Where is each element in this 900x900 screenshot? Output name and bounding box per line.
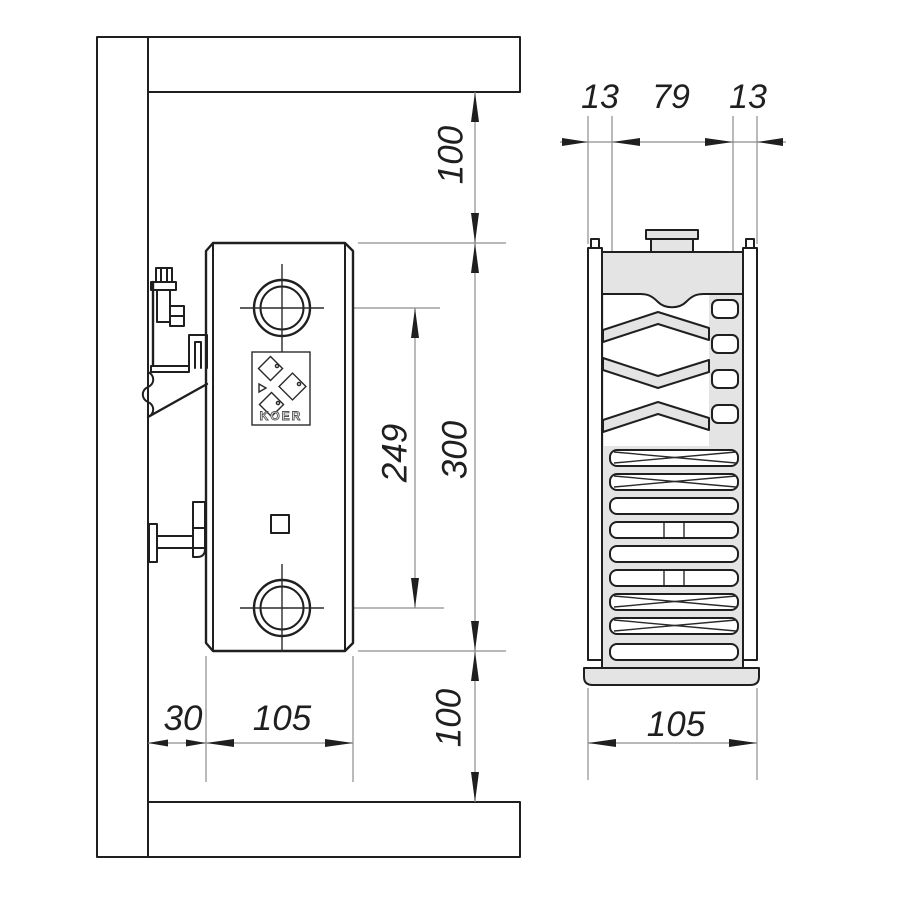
dim-label-floor-gap: 100 xyxy=(429,688,468,747)
technical-drawing-radiator-mounting: KOER 10 xyxy=(0,0,900,900)
dim-label-ceiling-gap: 100 xyxy=(431,125,470,184)
brick-wall xyxy=(97,37,148,857)
dim-label-core: 79 xyxy=(652,78,690,116)
dim-label-left-panel: 13 xyxy=(581,78,619,116)
connection-nipple xyxy=(646,230,698,239)
radiator-side-view: KOER xyxy=(206,243,353,652)
radiator-section-view xyxy=(584,230,759,685)
bottom-cap xyxy=(584,668,759,685)
grille-slots xyxy=(610,450,738,660)
radiator-body xyxy=(206,243,353,651)
koer-logo-text: KOER xyxy=(260,409,303,423)
right-side-panel xyxy=(743,248,757,660)
dim-label-wall-offset: 30 xyxy=(164,699,203,738)
vent-plug xyxy=(271,515,289,533)
koer-logo: KOER xyxy=(252,352,310,425)
dim-label-right-panel: 13 xyxy=(729,78,767,116)
dim-label-height: 300 xyxy=(435,420,474,479)
ceiling-beam xyxy=(148,37,520,92)
dim-label-port-spacing: 249 xyxy=(375,424,414,483)
floor-slab xyxy=(148,802,520,857)
dim-label-depth: 105 xyxy=(253,699,312,738)
bottom-wall-anchor xyxy=(149,502,205,562)
drawing-svg: KOER 10 xyxy=(0,0,900,900)
top-wall-bracket xyxy=(143,268,207,417)
dim-label-total-depth: 105 xyxy=(647,705,706,744)
left-side-panel xyxy=(588,248,602,660)
